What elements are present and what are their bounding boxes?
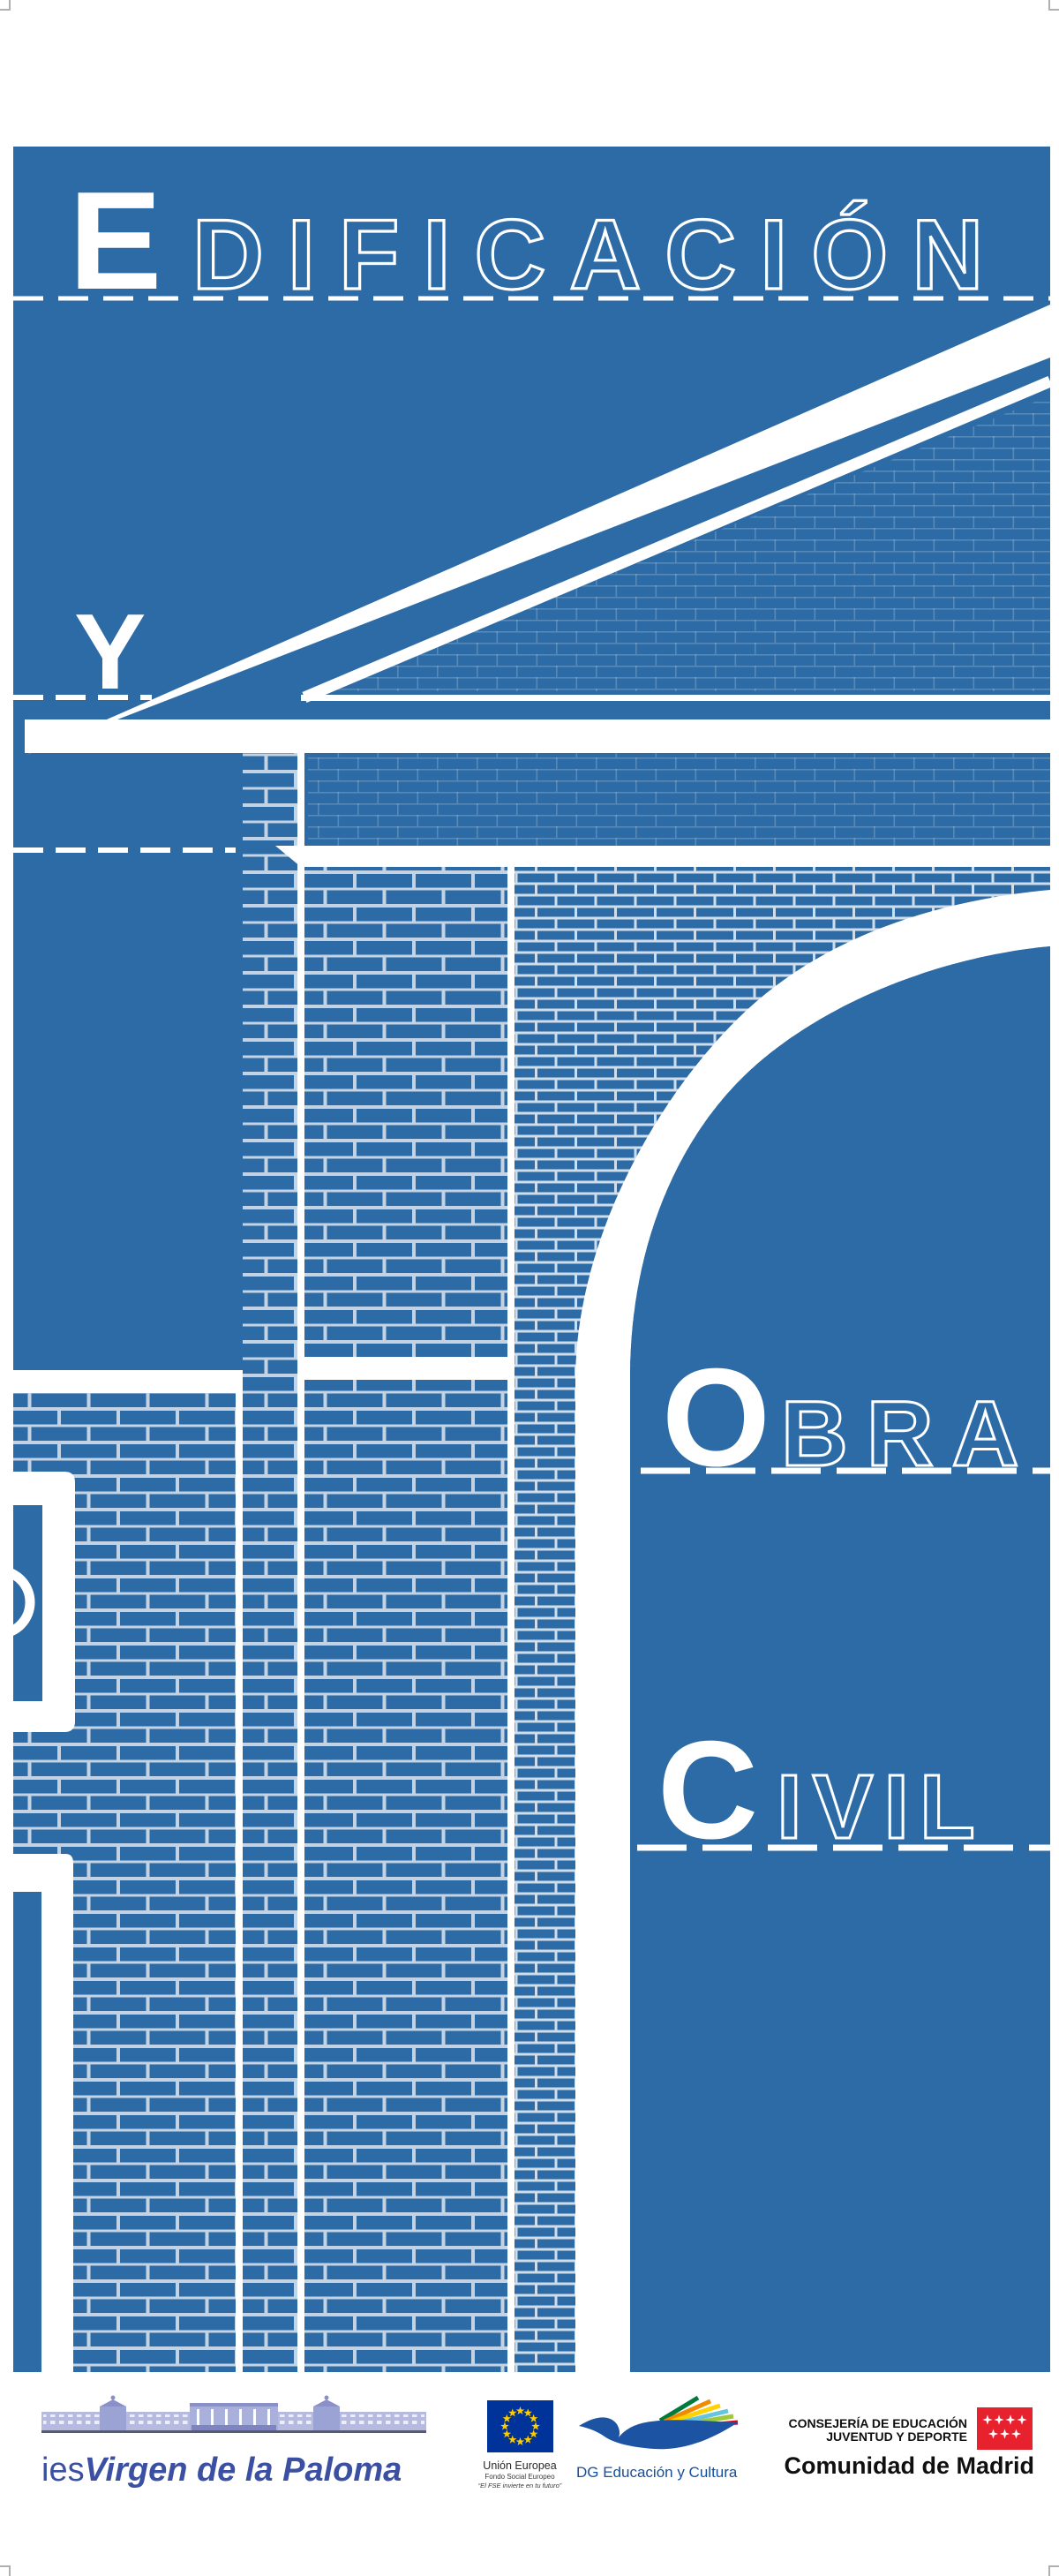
title-edificacion-initial: E bbox=[69, 163, 161, 319]
left-wall-band bbox=[13, 1370, 243, 1393]
roof-ceiling-line bbox=[301, 695, 1050, 701]
footer-logos: iesVirgen de la Paloma Unión Europe bbox=[0, 2388, 1059, 2494]
poster-page: E DIFICACIÓN Y bbox=[0, 0, 1059, 2576]
school-name-main: Virgen de la Paloma bbox=[85, 2452, 402, 2489]
dg-logo-block: DG Educación y Cultura bbox=[576, 2392, 753, 2482]
school-name: iesVirgen de la Paloma bbox=[41, 2452, 426, 2489]
title-conjunction: Y bbox=[74, 591, 146, 712]
dg-bird-icon bbox=[576, 2392, 744, 2456]
madrid-name: Comunidad de Madrid bbox=[785, 2452, 1035, 2480]
title-edificacion-outline: DIFICACIÓN bbox=[192, 200, 1007, 310]
architrave-band bbox=[275, 846, 1050, 867]
joint-line-1 bbox=[297, 753, 304, 2372]
dg-label: DG Educación y Cultura bbox=[576, 2464, 753, 2482]
roof-eave-band bbox=[25, 719, 1050, 753]
joint-line-3 bbox=[236, 1393, 243, 2372]
madrid-dept-line1: CONSEJERÍA DE EDUCACIÓN bbox=[788, 2417, 967, 2430]
eu-motto-label: “El FSE invierte en tu futuro” bbox=[462, 2482, 577, 2489]
school-building-icon bbox=[41, 2392, 426, 2435]
brick-column-wide bbox=[304, 867, 507, 2372]
eu-fund-label: Fondo Social Europeo bbox=[462, 2473, 577, 2481]
arch-panel bbox=[630, 946, 1050, 2372]
madrid-flag-icon bbox=[977, 2407, 1033, 2450]
madrid-dept-line2: JUVENTUD Y DEPORTE bbox=[788, 2430, 967, 2444]
eu-org-label: Unión Europea bbox=[462, 2459, 577, 2472]
brick-column-narrow bbox=[243, 753, 297, 2372]
left-pilaster bbox=[13, 1892, 41, 2372]
frieze-faint-bricks bbox=[308, 753, 1050, 846]
school-name-prefix: ies bbox=[41, 2452, 85, 2489]
blueprint-poster-graphic: E DIFICACIÓN Y bbox=[0, 0, 1059, 2576]
eu-logo-block: Unión Europea Fondo Social Europeo “El F… bbox=[462, 2400, 577, 2489]
madrid-department: CONSEJERÍA DE EDUCACIÓN JUVENTUD Y DEPOR… bbox=[788, 2417, 967, 2444]
joint-line-2 bbox=[507, 867, 514, 2372]
ies-logo-block: iesVirgen de la Paloma bbox=[41, 2392, 426, 2489]
column-break-band bbox=[304, 1357, 507, 1380]
title-civil-outline: IVIL bbox=[777, 1756, 986, 1857]
eu-flag-icon bbox=[487, 2400, 553, 2452]
